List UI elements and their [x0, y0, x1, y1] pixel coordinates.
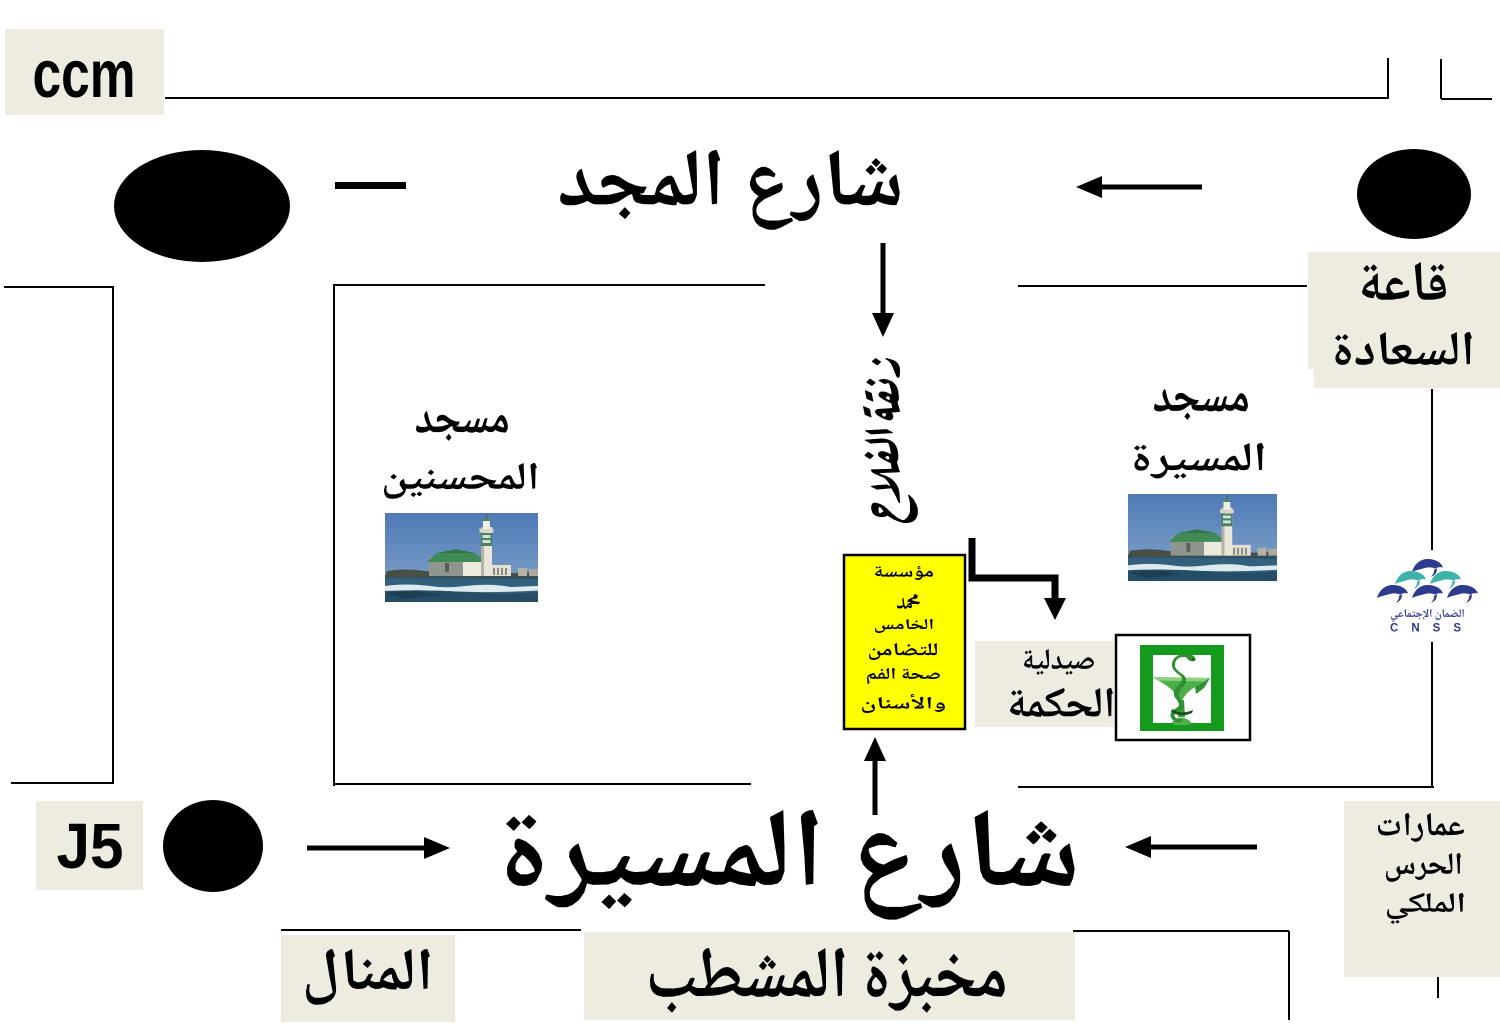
- svg-text:ccm: ccm: [33, 37, 136, 112]
- svg-text:J5: J5: [57, 810, 124, 882]
